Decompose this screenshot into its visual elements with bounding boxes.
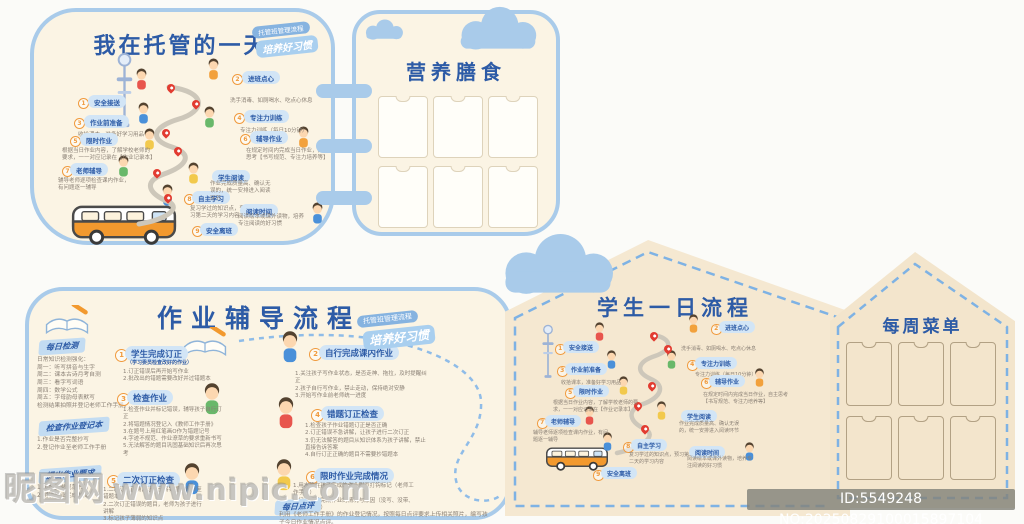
menu-slot xyxy=(846,342,892,406)
watermark-url: www.nipic.com xyxy=(113,473,372,507)
step-desc: 洗手消毒、如厕喝水、吃点心休息 xyxy=(681,346,776,353)
meal-slot xyxy=(378,166,428,228)
step-pill: 检查作业 xyxy=(127,390,173,405)
step-desc: 洗手消毒、如厕喝水、吃点心休息 xyxy=(230,98,318,105)
step-pill: 自主学习 xyxy=(631,439,667,451)
meal-slot xyxy=(378,96,428,158)
panel-day-board: 我在托管的一天 托管班管理流程 培养好习惯 1安全接送 2进班点心 洗手消毒、如… xyxy=(30,8,335,245)
step-pill: 专注力训练 xyxy=(244,110,289,123)
menu-slot xyxy=(898,342,944,406)
step-pill: 限时作业 xyxy=(80,133,118,146)
step-desc: 作业完成质量高、确认无误的，统一安排进入阅读环节 xyxy=(679,421,745,434)
meal-slot xyxy=(488,166,538,228)
student-icon xyxy=(275,397,297,434)
cloud-icon xyxy=(452,6,544,58)
step-pill: 安全离班 xyxy=(601,467,637,479)
step-desc: 根据当日作业内容，了解学校老师的要求，一一对应记录在【作业记录本】 xyxy=(553,400,638,413)
step-desc: 阅读绘本或课外读物，培养专注阅读的好习惯 xyxy=(238,214,308,229)
step-note: （学习委员检查改好的作业） xyxy=(127,359,192,366)
step-pill: 辅导作业 xyxy=(709,375,745,387)
step-lines: 1.检查孩子作业错题订正是否正确2.订正错误不急讲解，让孩子进行二次订正3.仍无… xyxy=(305,423,427,459)
watermark-brand: 昵图网 xyxy=(4,469,106,508)
step-desc: 辅导老师逐项检查课内作业，有问题逐一辅导 xyxy=(58,178,134,193)
binder-ring xyxy=(316,191,372,205)
cloud-icon xyxy=(496,234,620,304)
step-pill: 专注力训练 xyxy=(695,357,737,369)
panel-meals-title: 营养膳食 xyxy=(356,56,556,85)
image-id-badge: ID:5549248 NO:20250829100015897104 xyxy=(747,489,1015,510)
menu-slot xyxy=(950,416,996,480)
watermark: 昵图网 www.nipic.com xyxy=(4,462,364,510)
step-lines: 1.订正错误后再开始写作业2.批改出的错题需要改好并过错题本 xyxy=(123,369,231,384)
menu-slot xyxy=(950,342,996,406)
step-pill: 安全接送 xyxy=(88,95,126,108)
step-pill: 错题订正检查 xyxy=(321,406,384,421)
cloud-icon xyxy=(362,18,406,46)
step-lines: 1.关注孩子写作业状态，是否走神、拖拉，及时提醒纠正2.孩子自行写作业，禁止走动… xyxy=(295,371,427,400)
step-pill: 老师辅导 xyxy=(70,163,108,176)
step-desc: 在规定时间内完成当日作业，自主思考【书写规范、专注力培养等】 xyxy=(703,392,788,405)
menu-slot xyxy=(846,416,892,480)
step-desc: 根据当日作业内容，了解学校老师的要求，一一对应记录在【作业记录本】 xyxy=(62,148,154,163)
step-pill: 限时作业 xyxy=(573,385,609,397)
step-pill: 作业前准备 xyxy=(84,115,129,128)
step-desc: 阅读绘本或课外读物，培养专注阅读的好习惯 xyxy=(687,456,753,469)
meal-slot xyxy=(433,96,483,158)
student-icon xyxy=(279,331,301,368)
step-lines: 1.检查作业并标记错误，辅导孩子自行订正2.将错题情况登记入《教师工作手册》3.… xyxy=(123,407,223,458)
step-pill: 安全离班 xyxy=(200,223,238,236)
step-pill: 老师辅导 xyxy=(545,415,581,427)
step-pill: 作业前准备 xyxy=(565,363,607,375)
step-desc: 作业完成质量高、确认无误的，统一安排进入阅读环节 xyxy=(210,181,272,203)
meal-slot xyxy=(433,166,483,228)
step-pill: 进班点心 xyxy=(719,321,755,333)
poster-canvas: 我在托管的一天 托管班管理流程 培养好习惯 1安全接送 2进班点心 洗手消毒、如… xyxy=(0,0,1024,524)
daily-review-text: 利用《老师工作手册》的作业登记情况，按照每日点评要求上传相关照片，编写孩子今日作… xyxy=(279,512,489,524)
binder-ring xyxy=(316,139,372,153)
menu-slot xyxy=(898,416,944,480)
step-pill: 安全接送 xyxy=(563,341,599,353)
step-pill: 辅导作业 xyxy=(250,131,288,144)
step-desc: 辅导老师逐项检查课内作业，有问题逐一辅导 xyxy=(533,430,608,443)
step-pill: 进班点心 xyxy=(242,71,280,84)
step-desc: 复习学过的知识点，预习第二天的学习内容 xyxy=(629,452,689,465)
meal-slot xyxy=(488,96,538,158)
menu-card-grid xyxy=(846,342,994,480)
panel-menu-board: 每周菜单 xyxy=(830,252,1015,508)
meal-photo-grid xyxy=(378,96,536,228)
binder-ring xyxy=(316,84,372,98)
